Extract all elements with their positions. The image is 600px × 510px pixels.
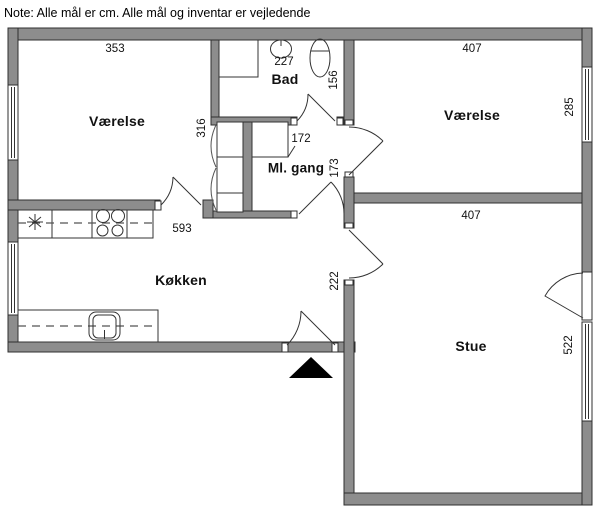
wall-center-seg1	[344, 40, 354, 125]
hall-closet-left	[211, 122, 243, 212]
jamb-bedroomR-top	[345, 120, 353, 125]
entrance-arrow-icon	[289, 357, 333, 378]
jamb-bedroomL	[155, 201, 161, 210]
door-living-room	[349, 230, 383, 278]
door-hallway-entry	[299, 182, 344, 214]
wall-bedroom-left-bottom	[8, 200, 160, 210]
wall-right-seg3	[582, 421, 592, 505]
window-living-room	[582, 322, 592, 421]
jamb-living-top	[345, 223, 353, 228]
window-bedroom-right	[582, 67, 592, 142]
dim-leader-172	[288, 146, 295, 157]
sink-icon	[271, 40, 292, 58]
wall-bedroom-left-jamb	[203, 200, 213, 218]
floorplan-drawing	[0, 0, 600, 510]
hall-closet-right	[252, 122, 288, 157]
door-bedroom-left	[161, 177, 201, 205]
wall-divider-bedroom-living	[354, 193, 582, 203]
jamb-hall-left	[291, 211, 297, 218]
door-entrance	[287, 311, 335, 345]
wall-center-seg3	[344, 280, 354, 493]
jamb-bath-right	[337, 118, 343, 125]
door-bathroom	[297, 94, 335, 121]
kitchen-counter-bottom	[18, 310, 158, 342]
wall-top	[8, 28, 592, 40]
closets	[211, 122, 295, 212]
wall-closet-divider	[243, 122, 252, 218]
shower-icon	[219, 40, 258, 77]
jamb-living-bottom	[345, 280, 353, 285]
bathroom-fixtures	[219, 39, 330, 77]
wall-bottom-left-wing	[8, 342, 355, 352]
wall-bottom-living-room	[344, 493, 592, 505]
note-text: Note: Alle mål er cm. Alle mål og invent…	[4, 6, 310, 20]
balcony-door	[545, 272, 592, 320]
wall-bathroom-left	[211, 40, 219, 122]
wall-right-seg1	[582, 28, 592, 67]
window-bedroom-left	[8, 85, 18, 160]
walls	[8, 28, 592, 505]
toilet-icon	[310, 39, 330, 77]
jamb-bath-left	[291, 118, 297, 125]
wall-right-seg2	[582, 142, 592, 272]
door-bedroom-right	[349, 127, 383, 175]
floorplan-page: Note: Alle mål er cm. Alle mål og invent…	[0, 0, 600, 510]
kitchen-counter-top	[18, 210, 153, 239]
wall-center-seg2	[344, 177, 354, 228]
window-kitchen	[8, 242, 18, 315]
